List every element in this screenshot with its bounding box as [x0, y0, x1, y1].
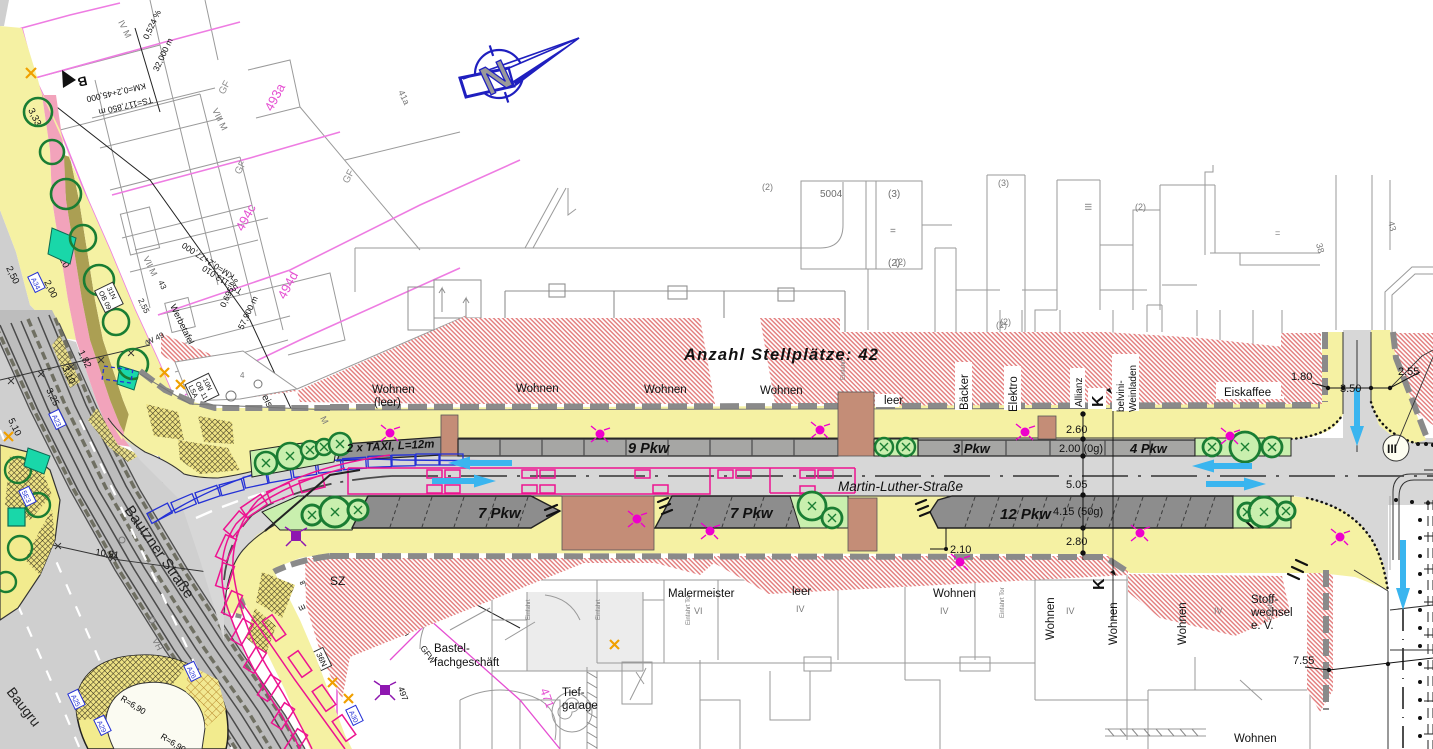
svg-text:Weinladen: Weinladen: [1128, 365, 1139, 412]
svg-text:fachgeschäft: fachgeschäft: [434, 657, 500, 669]
svg-text:VI: VI: [694, 606, 703, 616]
svg-text:=: =: [890, 226, 896, 237]
svg-text:=: =: [1275, 228, 1280, 238]
svg-text:(2): (2): [1135, 202, 1146, 212]
svg-text:e. V.: e. V.: [1251, 620, 1274, 632]
svg-text:leer: leer: [884, 395, 903, 407]
svg-text:Bastel-: Bastel-: [434, 643, 470, 655]
svg-text:5.05: 5.05: [1066, 479, 1087, 491]
svg-text:7 Pkw: 7 Pkw: [478, 505, 522, 522]
svg-text:Wohnen: Wohnen: [516, 383, 559, 395]
svg-text:leer: leer: [792, 586, 811, 598]
svg-text:garage: garage: [562, 700, 598, 712]
svg-text:K: K: [1090, 395, 1107, 407]
svg-text:3 Pkw: 3 Pkw: [953, 441, 991, 456]
svg-text:Einfahrt: Einfahrt: [596, 599, 602, 620]
svg-text:2.80: 2.80: [1066, 536, 1087, 548]
svg-text:(2): (2): [762, 182, 773, 192]
svg-text:Anzahl Stellplätze: 42: Anzahl Stellplätze: 42: [683, 346, 879, 364]
svg-text:(2): (2): [895, 257, 906, 267]
svg-text:IV: IV: [940, 606, 949, 616]
svg-text:(3): (3): [888, 189, 900, 200]
svg-text:2.55: 2.55: [1398, 366, 1419, 378]
svg-text:Allianz: Allianz: [1074, 378, 1085, 407]
svg-text:Wohnen: Wohnen: [372, 384, 415, 396]
svg-text:Elektro: Elektro: [1008, 376, 1020, 412]
svg-text:7.55: 7.55: [1293, 655, 1314, 667]
svg-text:2.00 (0g): 2.00 (0g): [1059, 443, 1103, 455]
svg-text:belvini-: belvini-: [1116, 380, 1127, 412]
svg-text:2.10: 2.10: [950, 544, 971, 556]
svg-text:o: o: [145, 337, 150, 347]
svg-text:5004: 5004: [820, 189, 843, 200]
svg-text:4 Pkw: 4 Pkw: [1129, 441, 1168, 456]
svg-text:1.80: 1.80: [1291, 371, 1312, 383]
svg-text:Bäcker: Bäcker: [959, 374, 971, 410]
svg-text:IV: IV: [1214, 606, 1223, 616]
svg-text:2.60: 2.60: [1066, 424, 1087, 436]
svg-text:Wohnen: Wohnen: [933, 588, 976, 600]
svg-text:Einfahrt Tor: Einfahrt Tor: [1000, 587, 1006, 618]
svg-text:Wohnen: Wohnen: [1108, 602, 1120, 645]
svg-text:Wohnen: Wohnen: [1234, 733, 1277, 745]
svg-text:7 Pkw: 7 Pkw: [730, 505, 774, 522]
svg-text:Eiskaffee: Eiskaffee: [1224, 387, 1271, 399]
svg-text:Wohnen: Wohnen: [1045, 597, 1057, 640]
svg-text:Einfahrt Tor: Einfahrt Tor: [686, 594, 692, 625]
svg-text:Einfahrt: Einfahrt: [1268, 599, 1274, 620]
svg-text:Malermeister: Malermeister: [668, 588, 735, 600]
svg-text:III: III: [1083, 203, 1093, 211]
svg-text:Stoff-: Stoff-: [1251, 594, 1278, 606]
svg-text:Einfahrt: Einfahrt: [526, 599, 532, 620]
svg-text:4.15 (50g): 4.15 (50g): [1053, 506, 1103, 518]
svg-text:Wohnen: Wohnen: [760, 385, 803, 397]
svg-text:IV: IV: [1066, 606, 1075, 616]
svg-text:Martin-Luther-Straße: Martin-Luther-Straße: [838, 479, 963, 494]
svg-text:9 Pkw: 9 Pkw: [628, 441, 671, 457]
svg-text:Wohnen: Wohnen: [1177, 602, 1189, 645]
svg-text:Wohnen: Wohnen: [644, 384, 687, 396]
svg-text:III: III: [1387, 442, 1397, 456]
svg-text:IV: IV: [796, 604, 805, 614]
svg-text:4: 4: [240, 371, 245, 380]
svg-text:Tief-: Tief-: [562, 687, 585, 699]
svg-text:K: K: [1091, 578, 1108, 590]
svg-text:Einfahrt: Einfahrt: [841, 359, 847, 380]
svg-text:SZ: SZ: [330, 574, 345, 588]
svg-text:(2): (2): [1000, 317, 1011, 327]
svg-text:(leer): (leer): [374, 397, 401, 409]
svg-text:12 Pkw: 12 Pkw: [1000, 506, 1052, 523]
svg-text:(3): (3): [998, 178, 1009, 188]
